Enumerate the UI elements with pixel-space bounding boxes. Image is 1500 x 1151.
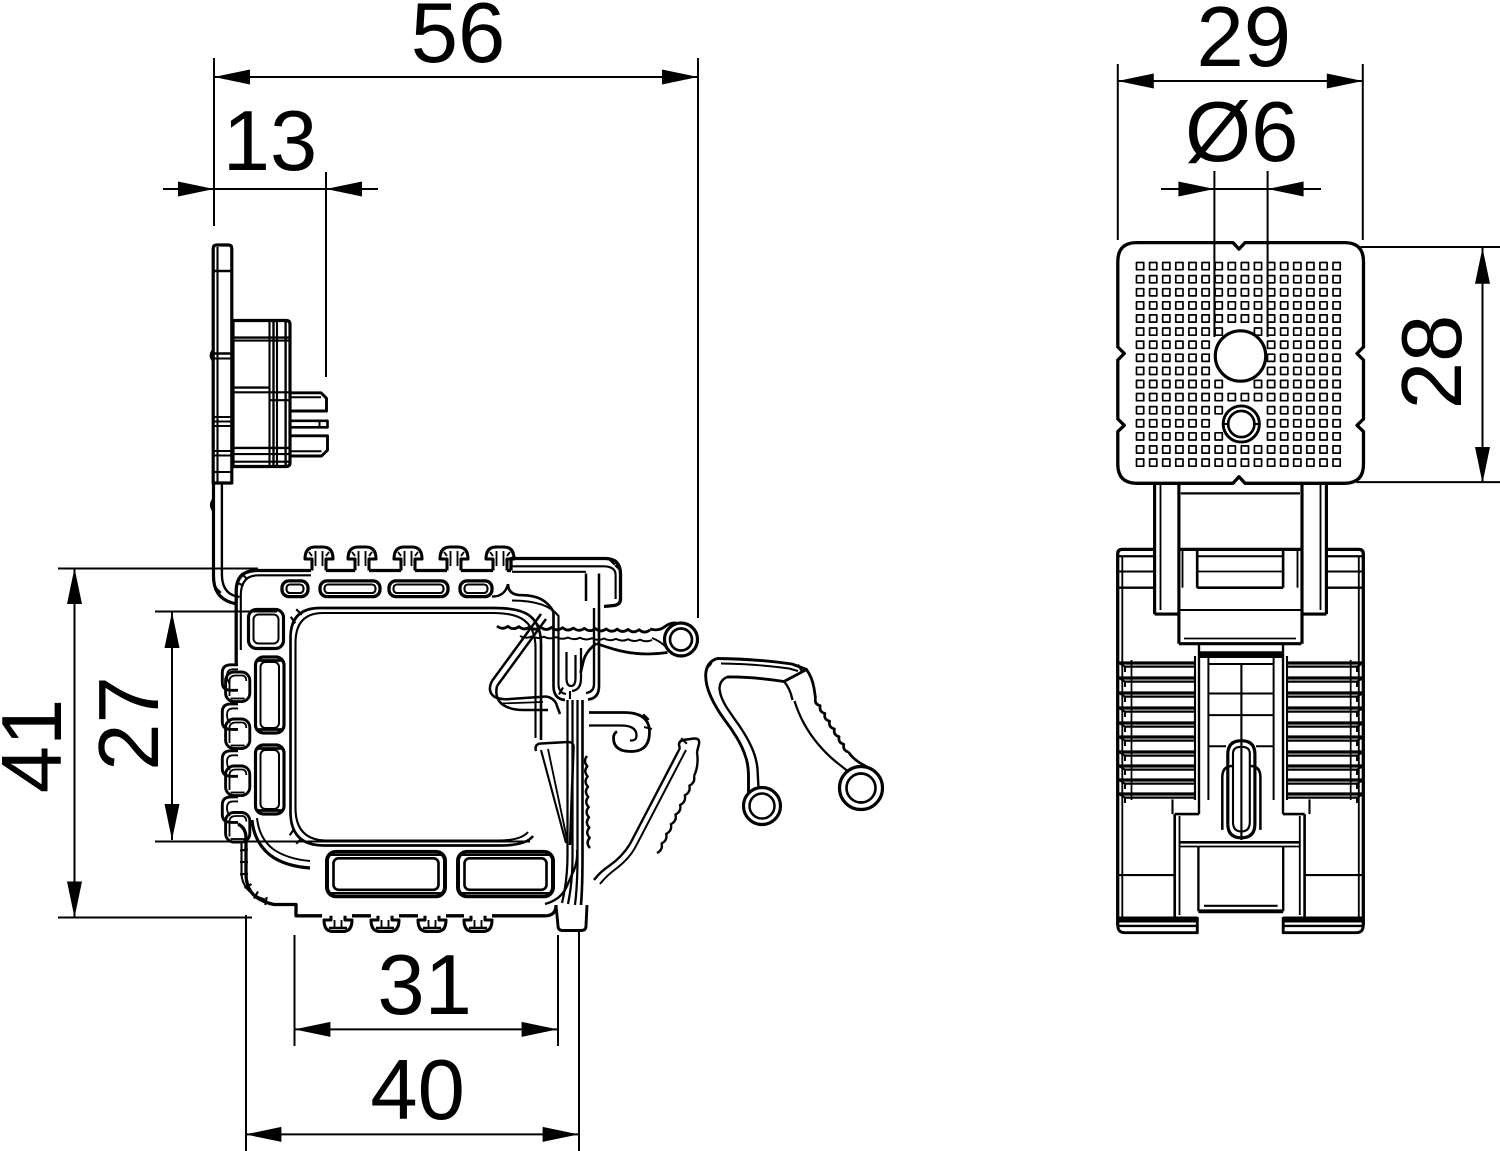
svg-text:27: 27	[82, 676, 177, 771]
svg-text:56: 56	[411, 0, 506, 81]
svg-text:40: 40	[370, 1043, 465, 1138]
svg-text:Ø6: Ø6	[1185, 85, 1298, 180]
svg-text:13: 13	[223, 94, 318, 189]
svg-text:28: 28	[1385, 315, 1480, 410]
svg-text:29: 29	[1197, 0, 1292, 85]
svg-text:31: 31	[377, 938, 472, 1033]
svg-text:41: 41	[0, 699, 80, 794]
